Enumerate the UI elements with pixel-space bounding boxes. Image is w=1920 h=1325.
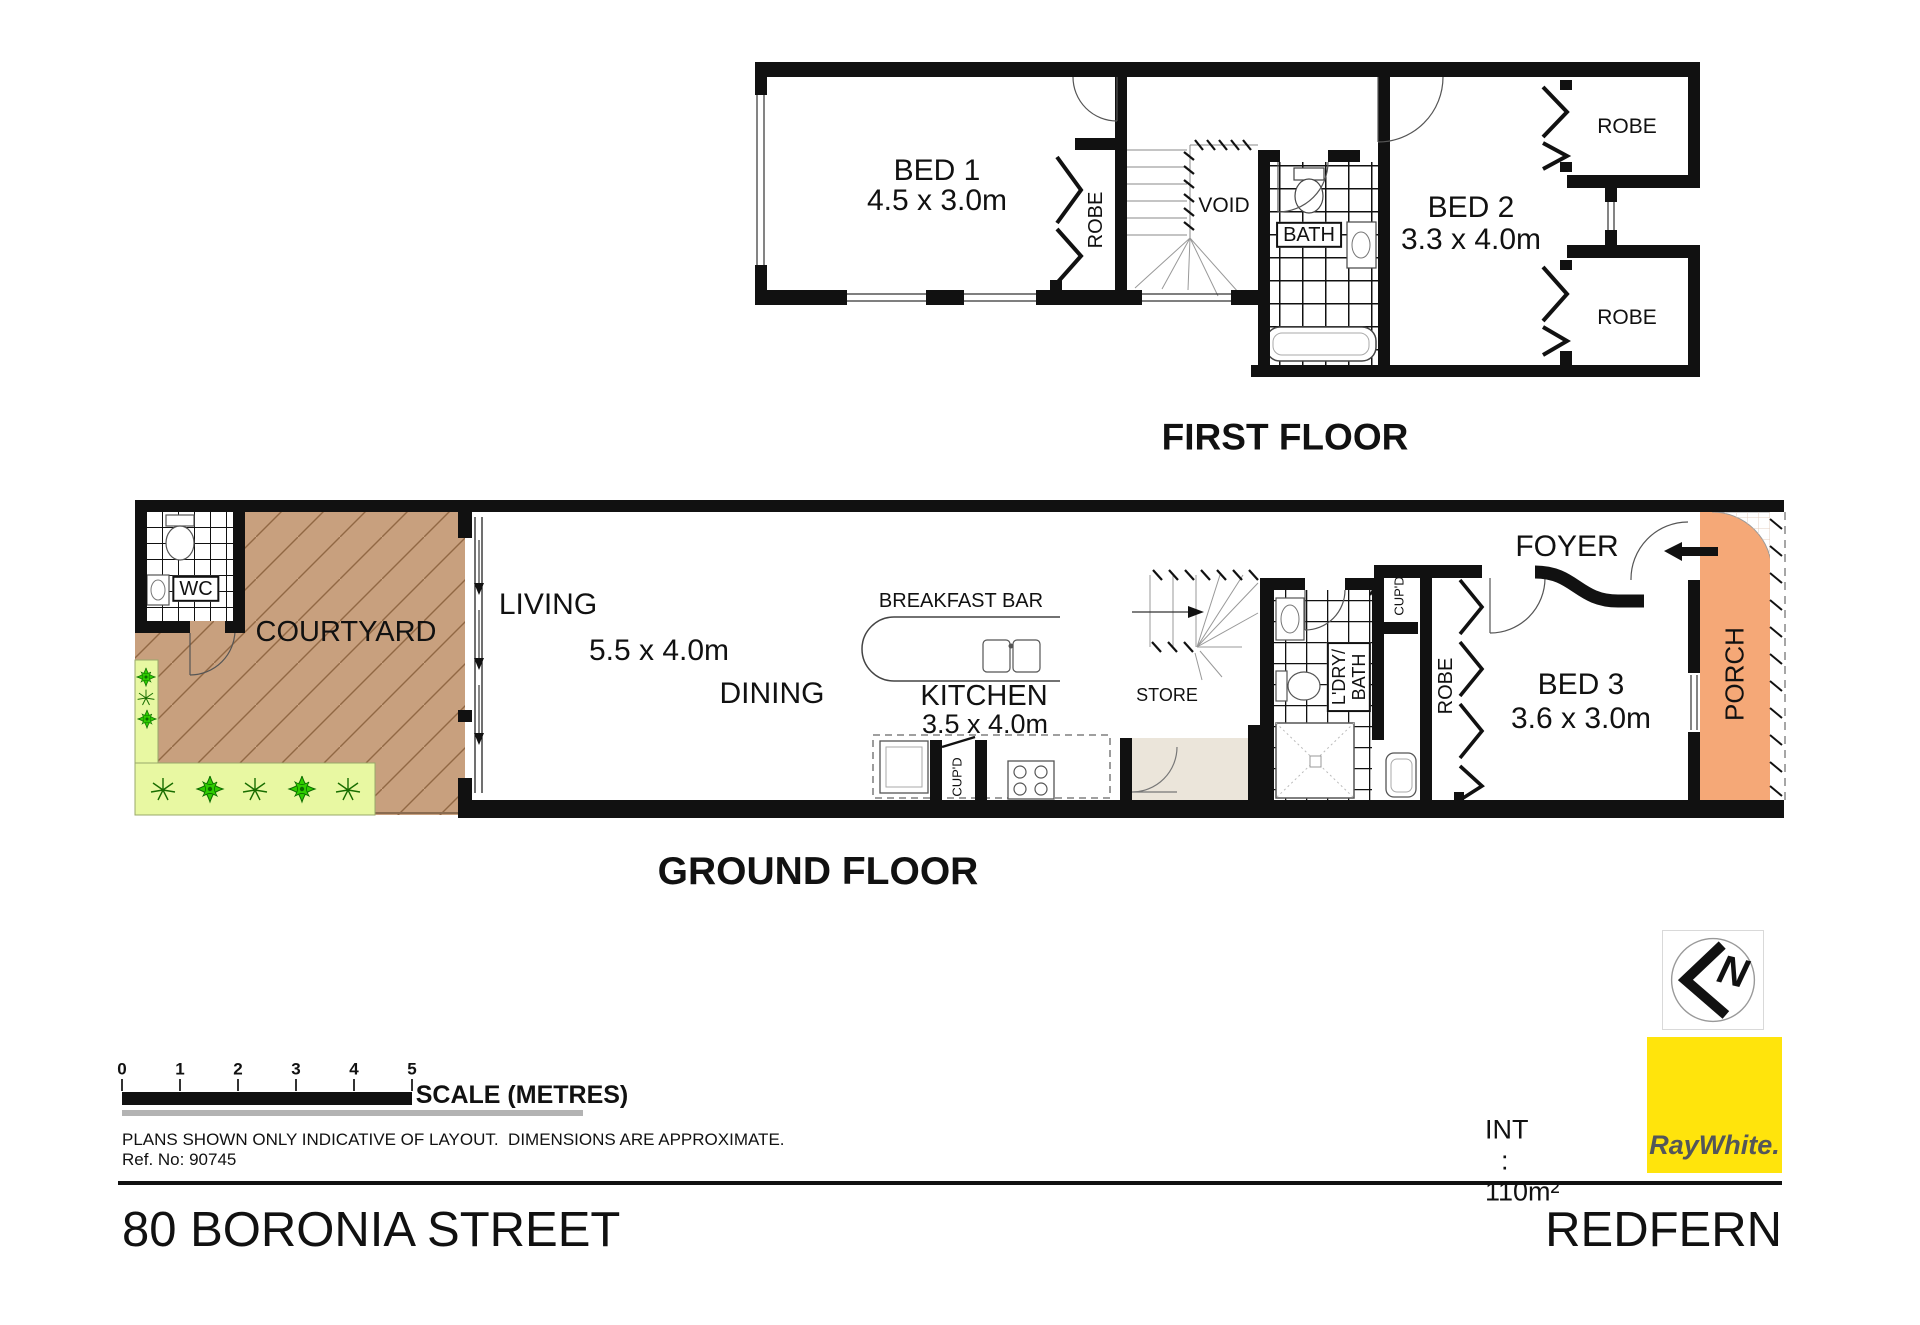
first-floor-plan: BED 1 4.5 x 3.0m ROBE VOID BATH BED 2 3.…	[750, 50, 1720, 400]
area-separator: :	[1501, 1146, 1509, 1177]
ff-bed2-dims: 3.3 x 4.0m	[1401, 223, 1541, 257]
store-label: STORE	[1136, 685, 1198, 705]
ff-void-label: VOID	[1198, 194, 1249, 218]
ground-floor-plan: WC COURTYARD LIVING 5.5 x 4.0m DINING BR…	[130, 495, 1790, 825]
kitchen-dims: 3.5 x 4.0m	[922, 709, 1048, 739]
entry-nook	[1120, 725, 1274, 800]
bed3-dims: 3.6 x 3.0m	[1511, 702, 1651, 736]
ff-bed1-dims: 4.5 x 3.0m	[867, 184, 1007, 218]
kitchen-bench	[873, 735, 1110, 800]
bed3-label: BED 3	[1538, 668, 1625, 702]
ref-number: Ref. No: 90745	[122, 1150, 236, 1170]
scale-tick-5: 5	[407, 1059, 416, 1078]
suburb: REDFERN	[1545, 1202, 1782, 1258]
living-label: LIVING	[499, 588, 597, 622]
scale-tick-4: 4	[349, 1059, 358, 1078]
gf-robe-label: ROBE	[1435, 658, 1457, 715]
raywhite-logo: RayWhite.	[1647, 1037, 1782, 1173]
north-arrow-icon: N	[1667, 934, 1759, 1026]
laundry-bath-label: L'DRY/ BATH	[1327, 642, 1371, 712]
laundry-line1: L'DRY/	[1329, 649, 1349, 705]
ff-robe-label: ROBE	[1085, 192, 1107, 249]
breakfast-bar-label: BREAKFAST BAR	[879, 590, 1043, 612]
ff-bath-label: BATH	[1276, 222, 1342, 248]
scale-tick-2: 2	[233, 1059, 242, 1078]
kitchen-label: KITCHEN	[920, 680, 1047, 712]
area-label: INT	[1485, 1115, 1529, 1146]
scale-tick-3: 3	[291, 1059, 300, 1078]
ff-robe-top-label: ROBE	[1597, 115, 1657, 139]
internal-area: INT : 110m²	[1455, 1084, 1560, 1239]
gf-windows	[1691, 675, 1697, 730]
street-address: 80 BORONIA STREET	[122, 1202, 620, 1258]
scale-tick-1: 1	[175, 1059, 184, 1078]
gf-stairs	[1132, 570, 1258, 680]
scale-bar-black	[122, 1092, 412, 1105]
ff-bathroom	[1266, 162, 1378, 365]
raywhite-wordmark: RayWhite.	[1649, 1130, 1780, 1161]
ff-bed2-label: BED 2	[1428, 191, 1515, 225]
courtyard-label: COURTYARD	[256, 616, 437, 648]
first-floor-drawing	[750, 50, 1720, 400]
porch-label: PORCH	[1720, 627, 1749, 721]
wc-label: WC	[172, 576, 219, 602]
ff-bed1-label: BED 1	[894, 154, 981, 188]
dining-label: DINING	[720, 677, 825, 711]
first-floor-title: FIRST FLOOR	[1162, 416, 1409, 457]
compass: N	[1662, 930, 1764, 1030]
floorplan-sheet: BED 1 4.5 x 3.0m ROBE VOID BATH BED 2 3.…	[0, 0, 1920, 1325]
scale-label: SCALE (METRES)	[416, 1081, 629, 1109]
living-dims: 5.5 x 4.0m	[589, 634, 729, 668]
foyer-label: FOYER	[1515, 530, 1618, 564]
scale-bar-grey	[122, 1110, 583, 1116]
ground-floor-title: GROUND FLOOR	[658, 850, 979, 894]
ff-stairs	[1127, 145, 1258, 302]
cupd-hall-label: CUP'D	[1393, 576, 1408, 615]
disclaimer-text: PLANS SHOWN ONLY INDICATIVE OF LAYOUT. D…	[122, 1130, 785, 1150]
footer-divider	[118, 1181, 1782, 1185]
cupd-kitchen-label: CUP'D	[951, 757, 966, 796]
ff-walls	[755, 62, 1700, 377]
laundry-line2: BATH	[1349, 649, 1369, 705]
breakfast-bar-island	[862, 617, 1060, 681]
scale-tick-0: 0	[117, 1059, 126, 1078]
sliding-door	[474, 517, 484, 793]
ff-robe-bottom-label: ROBE	[1597, 306, 1657, 330]
